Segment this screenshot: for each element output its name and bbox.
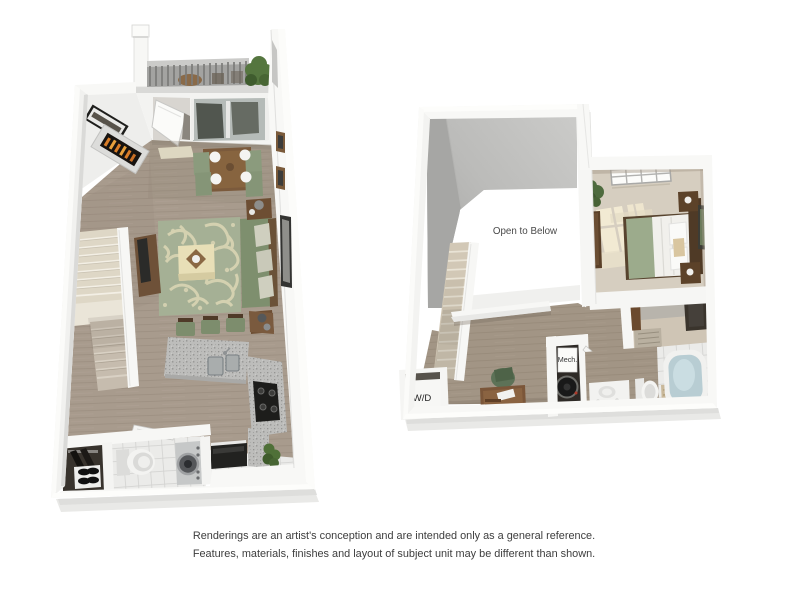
- svg-text:W/D: W/D: [413, 393, 432, 404]
- svg-text:Renderings are an artist's con: Renderings are an artist's conception an…: [193, 530, 595, 542]
- svg-text:Open to Below: Open to Below: [493, 226, 558, 237]
- svg-text:Features, materials, finishes: Features, materials, finishes and layout…: [193, 548, 595, 560]
- svg-text:Mech.: Mech.: [558, 355, 578, 364]
